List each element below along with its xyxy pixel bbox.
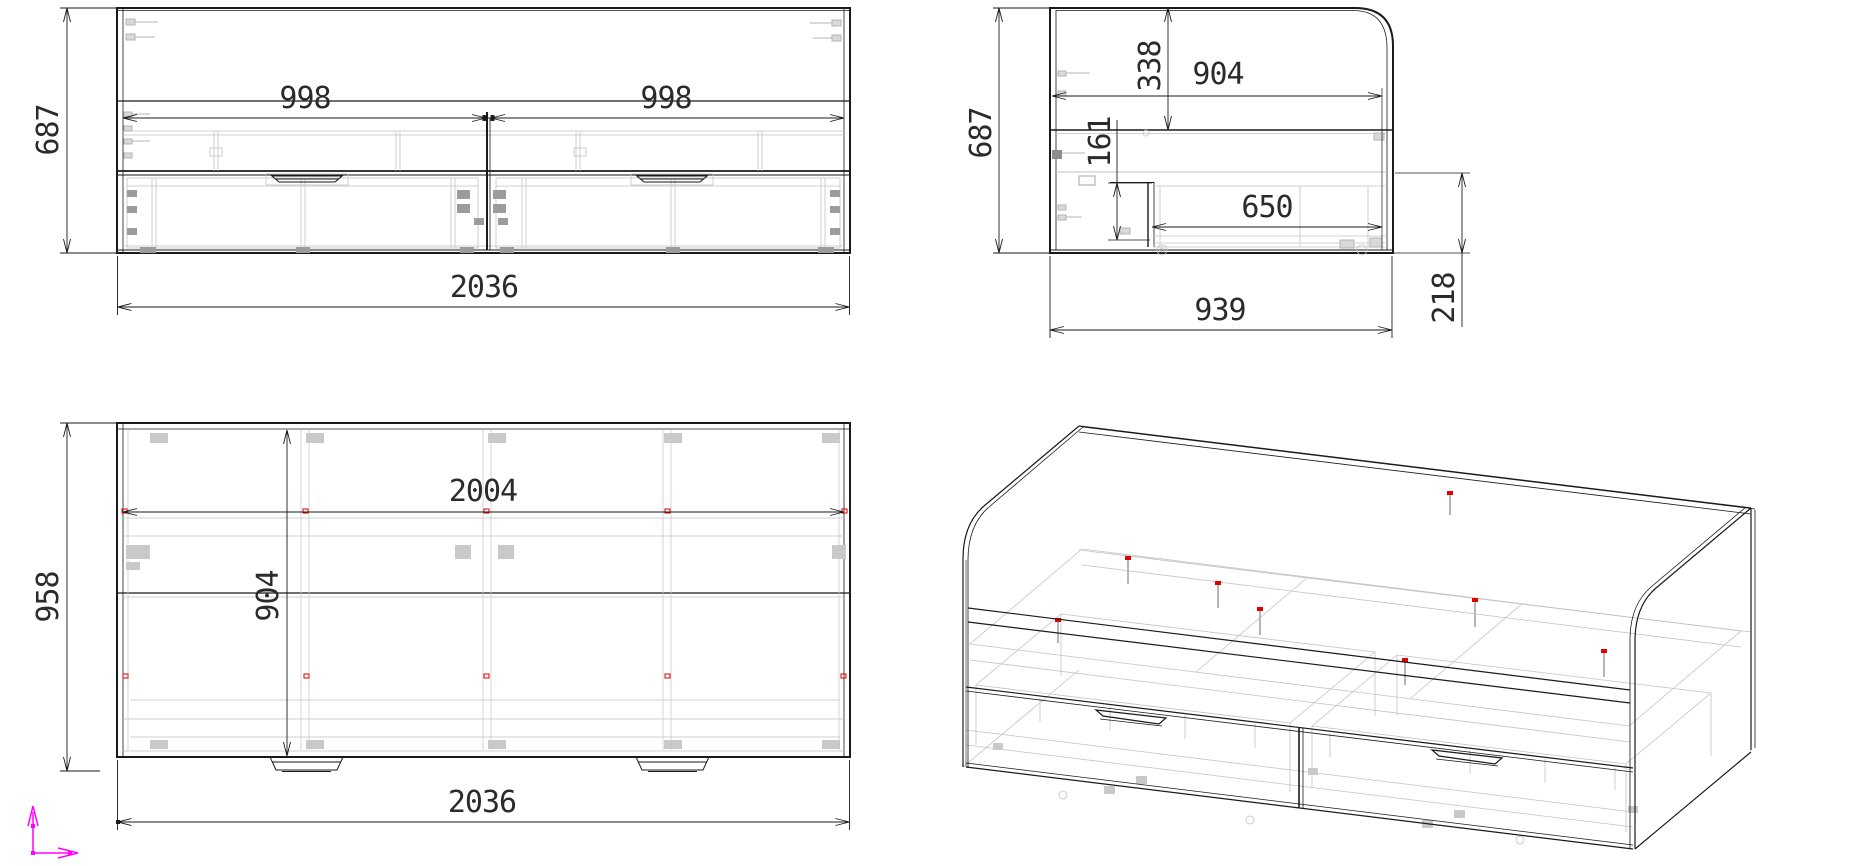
side-dim-height <box>993 8 1050 253</box>
side-dim-top-depth-label: 904 <box>1192 57 1243 92</box>
front-dim-height <box>60 8 117 253</box>
drawing-sheet: 687 998 998 2036 <box>0 0 1849 866</box>
side-view: 687 338 904 161 <box>964 8 1470 338</box>
plan-dim-inner-depth-label: 904 <box>251 570 286 621</box>
support-posts <box>1058 495 1604 685</box>
isometric-view <box>963 426 1755 849</box>
cad-drawing-canvas: 687 998 998 2036 <box>0 0 1849 866</box>
side-dim-drawer-offset-label: 161 <box>1083 116 1118 167</box>
plan-dim-depth <box>60 423 117 771</box>
front-dim-left-opening-label: 998 <box>279 81 330 116</box>
plan-dim-depth-label: 958 <box>31 571 66 622</box>
drawer-handle-plan-right <box>636 757 709 772</box>
plan-dim-width-label: 2036 <box>448 785 516 820</box>
side-dim-drawer-length-label: 650 <box>1241 190 1292 225</box>
side-dim-base-depth-label: 939 <box>1194 293 1245 328</box>
side-dim-headboard-drop-label: 338 <box>1133 40 1168 91</box>
plan-dim-inner-width-label: 2004 <box>449 474 517 509</box>
plan-view: 958 2004 904 2036 <box>31 423 850 830</box>
front-view: 687 998 998 2036 <box>31 8 850 315</box>
side-dim-drawer-height-label: 218 <box>1427 272 1462 323</box>
iso-markers <box>1055 491 1607 662</box>
front-dim-width-label: 2036 <box>450 270 518 305</box>
drawer-handle-plan-left <box>270 757 343 772</box>
front-dim-right-opening-label: 998 <box>640 81 691 116</box>
side-dim-height-label: 687 <box>964 107 999 158</box>
ucs-axis-icon <box>28 806 78 858</box>
front-dim-height-label: 687 <box>31 104 66 155</box>
